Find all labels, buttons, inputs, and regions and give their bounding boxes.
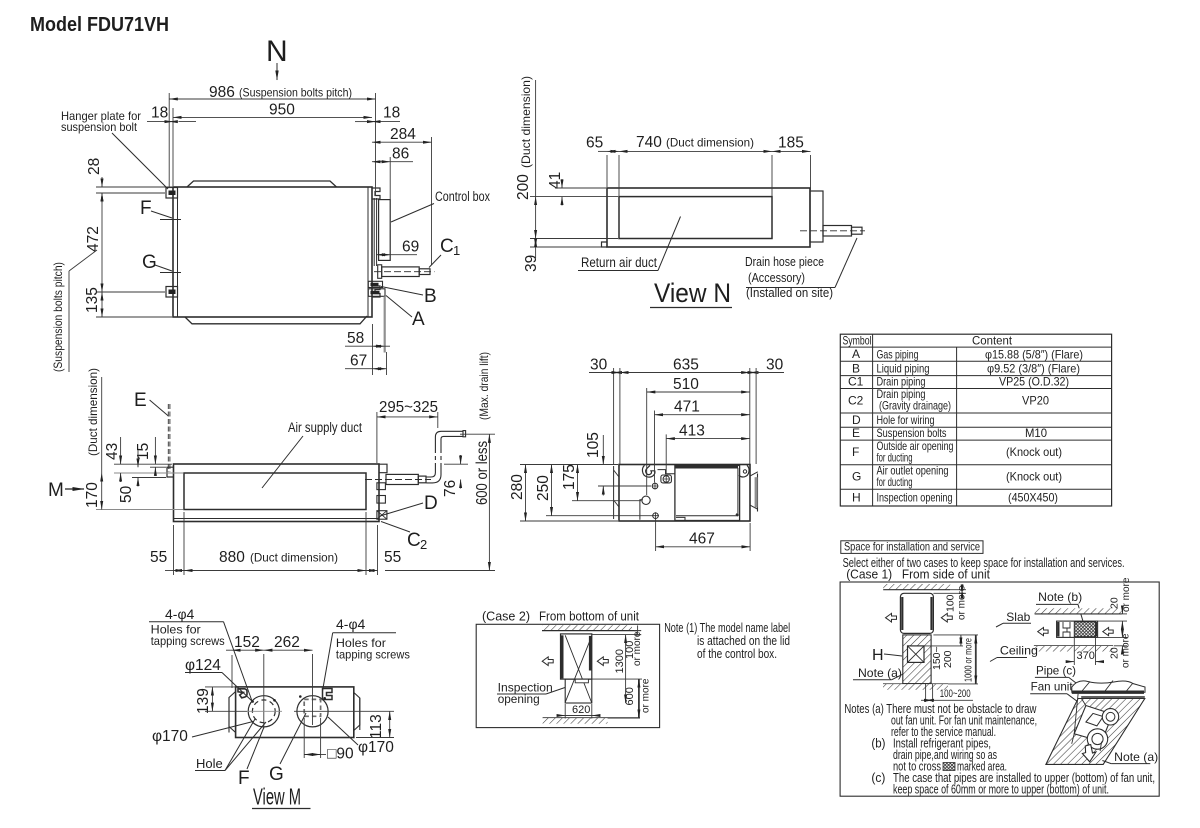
svg-text:or more: or more bbox=[1121, 577, 1132, 612]
svg-text:E: E bbox=[852, 426, 860, 440]
svg-text:of the control box.: of the control box. bbox=[697, 647, 777, 661]
svg-text:Model FDU71VH: Model FDU71VH bbox=[30, 14, 169, 36]
svg-text:Note (1) The model name label: Note (1) The model name label bbox=[664, 621, 790, 635]
svg-text:(Knock out): (Knock out) bbox=[1006, 445, 1062, 459]
svg-text:Control box: Control box bbox=[435, 189, 490, 204]
svg-text:From side of unit: From side of unit bbox=[902, 568, 990, 582]
svg-text:B: B bbox=[852, 362, 860, 376]
svg-text:or more: or more bbox=[1121, 633, 1132, 668]
svg-text:600 or less: 600 or less bbox=[474, 441, 491, 505]
svg-text:G: G bbox=[142, 252, 157, 273]
svg-text:(c): (c) bbox=[871, 771, 885, 785]
svg-text:or more: or more bbox=[641, 678, 652, 713]
svg-text:4-φ4: 4-φ4 bbox=[165, 606, 195, 622]
svg-text:284: 284 bbox=[390, 126, 416, 143]
svg-text:Hole: Hole bbox=[196, 756, 223, 771]
svg-text:Note (b): Note (b) bbox=[1038, 590, 1082, 604]
svg-text:Gas piping: Gas piping bbox=[877, 348, 919, 362]
svg-text:105: 105 bbox=[585, 432, 602, 458]
svg-text:295~325: 295~325 bbox=[379, 399, 438, 416]
svg-text:Content: Content bbox=[972, 334, 1013, 348]
svg-text:G: G bbox=[852, 470, 861, 484]
svg-text:262: 262 bbox=[274, 634, 300, 651]
svg-text:370: 370 bbox=[1077, 650, 1095, 662]
svg-text:D: D bbox=[852, 413, 861, 427]
svg-text:Ceiling: Ceiling bbox=[1000, 644, 1038, 658]
svg-text:880: 880 bbox=[219, 549, 245, 566]
svg-text:2: 2 bbox=[420, 537, 427, 552]
svg-text:φ124: φ124 bbox=[185, 657, 221, 674]
svg-text:C1: C1 bbox=[848, 375, 864, 389]
svg-text:G: G bbox=[269, 764, 284, 785]
svg-text:55: 55 bbox=[150, 549, 167, 566]
svg-text:1000 or more: 1000 or more bbox=[963, 638, 975, 682]
svg-text:(450X450): (450X450) bbox=[1008, 491, 1058, 505]
svg-text:A: A bbox=[412, 309, 425, 330]
svg-text:keep space of 60mm or more to: keep space of 60mm or more to upper (bot… bbox=[893, 783, 1109, 797]
svg-text:28: 28 bbox=[86, 158, 103, 175]
svg-text:Drain hose piece: Drain hose piece bbox=[745, 254, 824, 269]
svg-text:30: 30 bbox=[766, 357, 784, 374]
svg-text:471: 471 bbox=[674, 399, 700, 416]
svg-text:20: 20 bbox=[1109, 597, 1121, 609]
svg-text:F: F bbox=[140, 198, 152, 219]
svg-text:152: 152 bbox=[234, 634, 260, 651]
svg-text:for ducting: for ducting bbox=[877, 475, 913, 489]
svg-text:φ9.52 (3/8″) (Flare): φ9.52 (3/8″) (Flare) bbox=[987, 362, 1080, 376]
svg-text:Slab: Slab bbox=[1006, 610, 1030, 624]
svg-text:100: 100 bbox=[945, 594, 957, 612]
svg-text:510: 510 bbox=[673, 376, 699, 393]
svg-text:986: 986 bbox=[209, 84, 235, 101]
svg-text:175: 175 bbox=[561, 464, 578, 490]
svg-text:135: 135 bbox=[84, 287, 101, 313]
svg-text:467: 467 bbox=[689, 531, 715, 548]
svg-text:suspension bolt: suspension bolt bbox=[61, 120, 138, 134]
svg-text:43: 43 bbox=[104, 443, 121, 460]
svg-text:Hole for wiring: Hole for wiring bbox=[877, 413, 935, 427]
svg-text:200: 200 bbox=[515, 174, 532, 200]
svg-text:for ducting: for ducting bbox=[877, 451, 913, 465]
svg-text:(Duct dimension): (Duct dimension) bbox=[519, 76, 533, 168]
svg-text:Air supply duct: Air supply duct bbox=[288, 420, 362, 435]
svg-text:M10: M10 bbox=[1025, 426, 1047, 440]
svg-text:(Suspension bolts pitch): (Suspension bolts pitch) bbox=[51, 262, 65, 372]
svg-text:30: 30 bbox=[590, 357, 608, 374]
svg-text:φ15.88 (5/8″) (Flare): φ15.88 (5/8″) (Flare) bbox=[985, 348, 1083, 362]
svg-text:69: 69 bbox=[402, 239, 419, 256]
svg-text:D: D bbox=[424, 493, 438, 514]
svg-text:VP20: VP20 bbox=[1022, 394, 1049, 408]
svg-text:139: 139 bbox=[195, 688, 212, 714]
svg-text:(Duct dimension): (Duct dimension) bbox=[86, 368, 100, 456]
svg-text:Inspection opening: Inspection opening bbox=[877, 491, 953, 505]
svg-text:185: 185 bbox=[778, 135, 804, 152]
svg-text:or more: or more bbox=[632, 631, 643, 666]
svg-text:280: 280 bbox=[509, 474, 526, 500]
svg-text:41: 41 bbox=[547, 172, 564, 189]
svg-text:(Case 2): (Case 2) bbox=[482, 609, 530, 624]
svg-text:C: C bbox=[407, 530, 421, 551]
svg-text:(Duct dimension): (Duct dimension) bbox=[666, 136, 754, 150]
svg-text:C: C bbox=[440, 236, 454, 257]
svg-text:Pipe (c): Pipe (c) bbox=[1036, 664, 1076, 678]
svg-text:413: 413 bbox=[679, 423, 705, 440]
svg-text:E: E bbox=[134, 390, 147, 411]
svg-text:(Suspension bolts pitch): (Suspension bolts pitch) bbox=[239, 86, 352, 100]
svg-text:200: 200 bbox=[942, 650, 954, 668]
svg-text:□90: □90 bbox=[327, 746, 354, 763]
svg-text:18: 18 bbox=[383, 105, 400, 122]
svg-text:φ170: φ170 bbox=[152, 728, 188, 745]
svg-text:Fan unit: Fan unit bbox=[1031, 680, 1074, 694]
svg-text:55: 55 bbox=[384, 549, 401, 566]
svg-text:58: 58 bbox=[347, 330, 364, 347]
svg-text:Return air duct: Return air duct bbox=[581, 255, 657, 270]
svg-text:View N: View N bbox=[654, 278, 731, 308]
svg-text:or more: or more bbox=[957, 585, 968, 620]
svg-text:170: 170 bbox=[84, 482, 101, 508]
svg-text:76: 76 bbox=[442, 480, 459, 497]
svg-text:(Knock out): (Knock out) bbox=[1006, 470, 1062, 484]
svg-text:18: 18 bbox=[151, 105, 168, 122]
svg-text:50: 50 bbox=[118, 485, 135, 503]
svg-text:39: 39 bbox=[523, 255, 540, 272]
svg-text:65: 65 bbox=[586, 135, 603, 152]
svg-text:M: M bbox=[48, 480, 64, 501]
svg-text:A: A bbox=[852, 347, 860, 361]
svg-text:600: 600 bbox=[624, 687, 636, 705]
svg-text:(Accessory): (Accessory) bbox=[748, 270, 805, 285]
svg-text:635: 635 bbox=[673, 357, 699, 374]
svg-text:tapping screws: tapping screws bbox=[336, 648, 410, 662]
svg-text:100~200: 100~200 bbox=[940, 688, 971, 700]
svg-text:F: F bbox=[852, 445, 859, 459]
svg-text:VP25 (O.D.32): VP25 (O.D.32) bbox=[999, 375, 1069, 389]
svg-text:20: 20 bbox=[1109, 647, 1121, 659]
svg-text:Symbol: Symbol bbox=[843, 334, 872, 348]
svg-text:Note (a): Note (a) bbox=[1114, 750, 1158, 764]
svg-text:740: 740 bbox=[636, 134, 662, 151]
svg-text:Liquid piping: Liquid piping bbox=[877, 362, 930, 376]
svg-text:φ170: φ170 bbox=[358, 739, 394, 756]
svg-text:(Case 1): (Case 1) bbox=[846, 568, 892, 582]
svg-text:950: 950 bbox=[269, 102, 295, 119]
svg-text:113: 113 bbox=[368, 714, 385, 739]
svg-text:View M: View M bbox=[253, 784, 301, 810]
svg-text:1: 1 bbox=[453, 243, 460, 258]
svg-text:620: 620 bbox=[572, 704, 590, 716]
svg-text:67: 67 bbox=[350, 353, 367, 370]
svg-text:(Gravity drainage): (Gravity drainage) bbox=[879, 399, 951, 413]
svg-text:4-φ4: 4-φ4 bbox=[336, 616, 366, 632]
svg-text:tapping screws: tapping screws bbox=[151, 634, 225, 648]
svg-text:472: 472 bbox=[85, 226, 102, 252]
svg-text:Suspension bolts: Suspension bolts bbox=[877, 426, 947, 440]
svg-text:B: B bbox=[424, 286, 437, 307]
svg-text:(Duct dimension): (Duct dimension) bbox=[250, 551, 338, 565]
svg-text:Space for installation and ser: Space for installation and service bbox=[844, 540, 980, 554]
svg-text:C2: C2 bbox=[848, 394, 864, 408]
svg-text:H: H bbox=[872, 647, 884, 664]
svg-text:is attached on the lid: is attached on the lid bbox=[697, 634, 790, 648]
svg-text:(b): (b) bbox=[871, 737, 885, 751]
svg-text:(Max. drain lift): (Max. drain lift) bbox=[477, 352, 491, 420]
svg-text:250: 250 bbox=[535, 475, 552, 501]
svg-text:From bottom of unit: From bottom of unit bbox=[539, 609, 639, 624]
svg-text:H: H bbox=[852, 491, 861, 505]
svg-text:86: 86 bbox=[392, 146, 409, 163]
svg-text:F: F bbox=[238, 768, 250, 789]
